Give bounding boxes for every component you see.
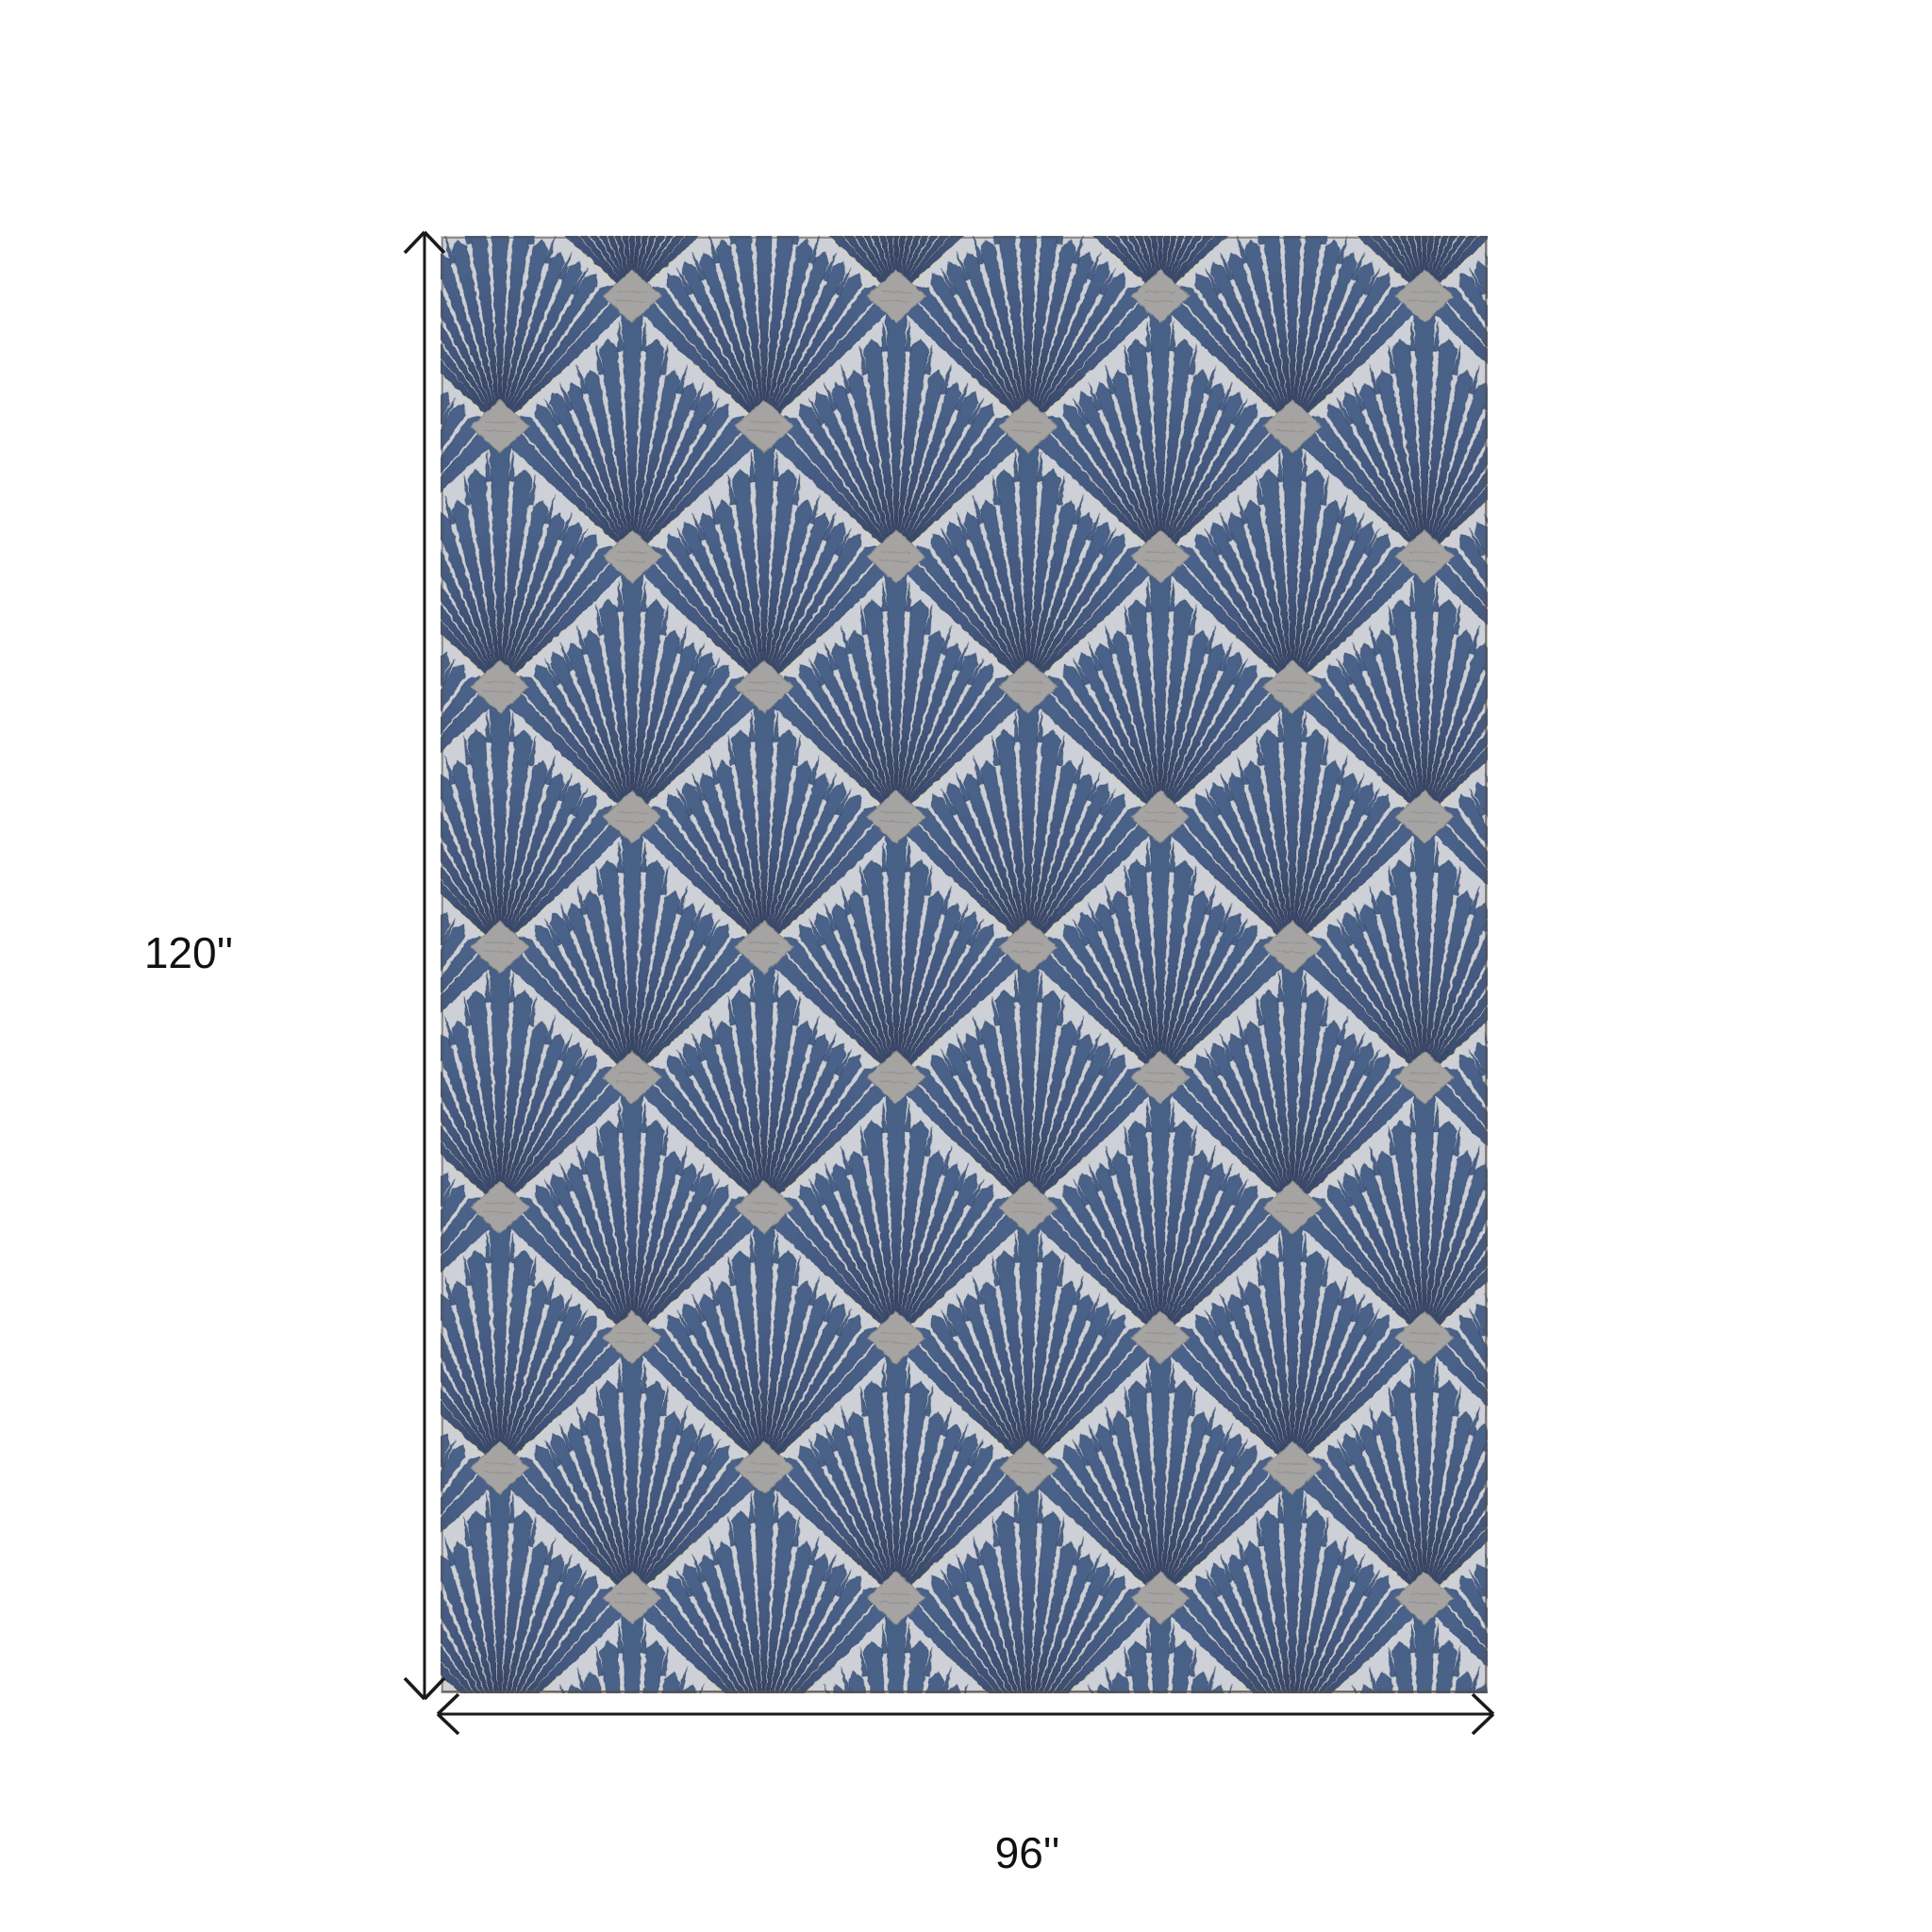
svg-text:120'': 120'' — [144, 928, 233, 977]
svg-text:96'': 96'' — [995, 1828, 1060, 1877]
